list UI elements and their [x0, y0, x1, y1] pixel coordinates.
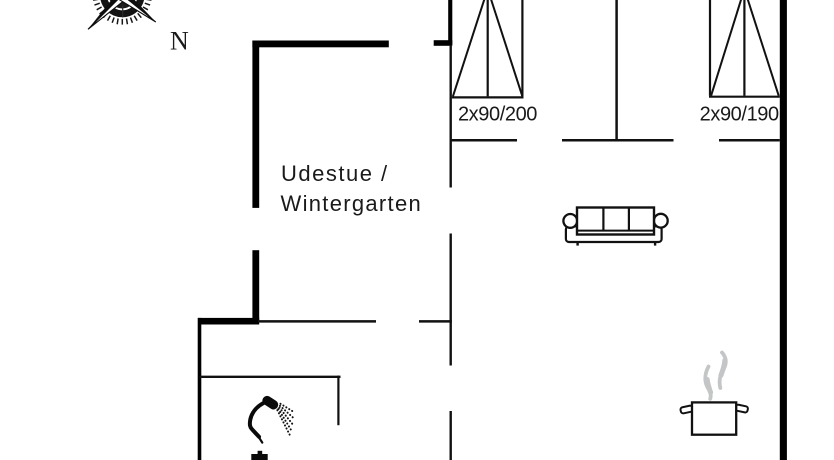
svg-text:Wintergarten: Wintergarten [281, 191, 423, 216]
svg-text:2x90/200: 2x90/200 [458, 103, 537, 125]
svg-text:N: N [170, 27, 189, 56]
svg-text:2x90/190: 2x90/190 [700, 103, 779, 125]
svg-text:Udestue /: Udestue / [281, 161, 389, 186]
